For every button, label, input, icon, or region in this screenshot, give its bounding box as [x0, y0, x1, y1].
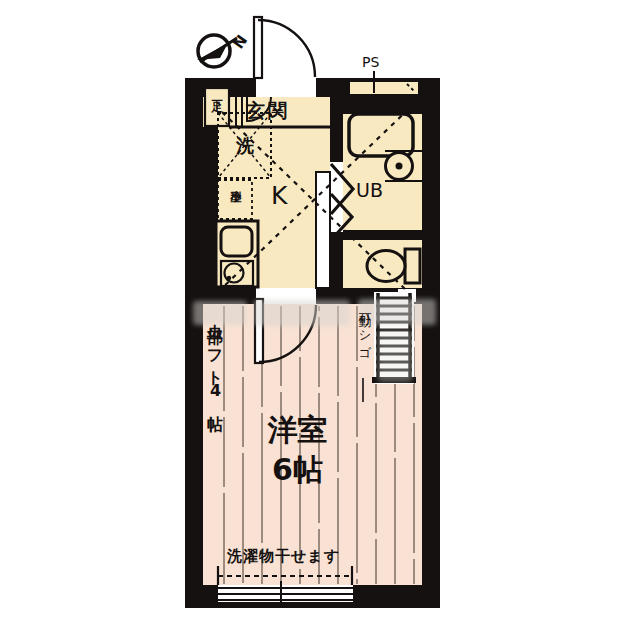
watermark	[378, 330, 412, 382]
toilet	[367, 249, 420, 283]
entrance-label: 玄関	[246, 98, 290, 124]
duct-strip	[316, 172, 330, 288]
ps-label: PS	[362, 54, 379, 70]
western-room-size: 6帖	[240, 450, 355, 490]
unit-bath-label: UB	[356, 179, 383, 201]
bathtub	[349, 114, 413, 156]
loft-label: 上部ロフト4帖	[204, 311, 225, 406]
toilet-bowl	[367, 251, 405, 282]
floor-plan: N PS 玄関 下足 洗 小型冷 K UB 上部ロフト4帖 可動ハシゴ 洋室 6…	[0, 0, 640, 639]
pipe-space	[350, 71, 418, 94]
shoe-cabinet-label: 下足	[208, 91, 223, 93]
washer-label: 洗	[236, 134, 254, 158]
western-room-name: 洋室	[240, 410, 355, 450]
entrance-opening	[256, 78, 316, 97]
western-room-label: 洋室 6帖	[240, 410, 355, 489]
entrance-door-arc	[258, 20, 315, 77]
watermark	[254, 300, 350, 326]
toilet-tank	[405, 249, 420, 283]
kitchen-label: K	[271, 181, 287, 210]
laundry-note-label: 洗濯物干せます	[227, 547, 340, 566]
kitchen-sink	[221, 227, 252, 256]
entrance-door	[254, 17, 315, 78]
ladder-label: 可動ハシゴ	[356, 304, 373, 352]
kitchen-counter	[216, 221, 258, 287]
